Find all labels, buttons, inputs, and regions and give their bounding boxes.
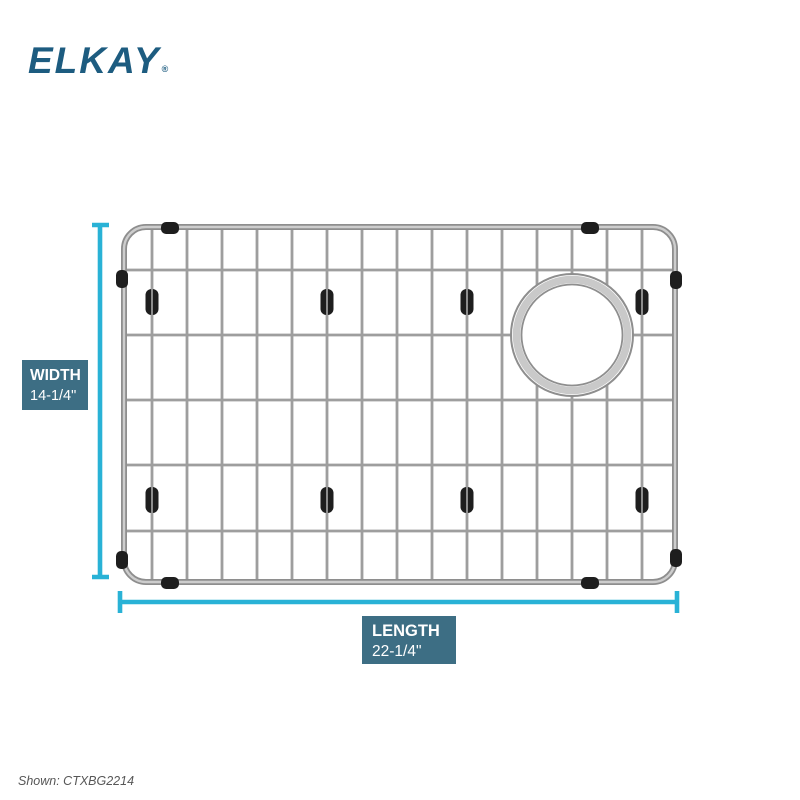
length-label-text: LENGTH <box>372 620 456 642</box>
mounting-clip <box>581 577 599 589</box>
width-value-text: 14-1/4" <box>30 386 88 406</box>
mounting-clip <box>670 271 682 289</box>
rubber-foot <box>636 487 649 513</box>
rubber-foot <box>321 487 334 513</box>
mounting-clip <box>116 551 128 569</box>
length-value-text: 22-1/4" <box>372 642 456 662</box>
drain-ring-outer <box>511 274 633 396</box>
width-dimension-line <box>92 225 109 577</box>
mounting-clip <box>581 222 599 234</box>
mounting-clip <box>670 549 682 567</box>
product-diagram-canvas: ELKAY® <box>0 0 800 800</box>
sink-grid-drawing <box>0 0 800 800</box>
length-dimension-label: LENGTH 22-1/4" <box>362 616 456 664</box>
rubber-foot <box>461 289 474 315</box>
mounting-clips <box>116 222 682 589</box>
rubber-foot <box>146 487 159 513</box>
rubber-foot <box>321 289 334 315</box>
length-dimension-line <box>120 591 677 613</box>
shown-model-caption: Shown: CTXBG2214 <box>18 774 134 788</box>
width-dimension-label: WIDTH 14-1/4" <box>22 360 88 410</box>
rubber-foot <box>461 487 474 513</box>
rubber-foot <box>146 289 159 315</box>
width-label-text: WIDTH <box>30 365 88 386</box>
mounting-clip <box>161 577 179 589</box>
mounting-clip <box>161 222 179 234</box>
mounting-clip <box>116 270 128 288</box>
rubber-foot <box>636 289 649 315</box>
drain-opening <box>511 274 633 396</box>
